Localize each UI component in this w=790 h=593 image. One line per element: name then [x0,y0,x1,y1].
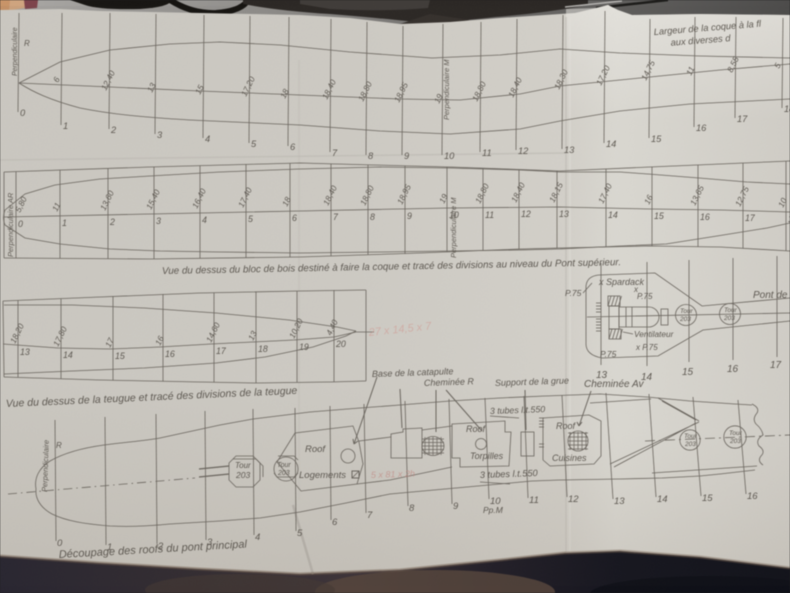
svg-text:R: R [24,39,30,48]
svg-text:15: 15 [654,211,664,221]
svg-text:Tour: Tour [729,430,743,437]
svg-text:7: 7 [367,510,373,521]
svg-text:1: 1 [63,121,68,131]
svg-text:Tour: Tour [680,308,694,315]
svg-text:Roof: Roof [466,424,487,434]
svg-text:17: 17 [216,346,227,356]
svg-text:16: 16 [165,349,175,359]
svg-text:Pp.M: Pp.M [483,505,504,515]
svg-text:203: 203 [277,470,290,477]
svg-text:5: 5 [248,214,253,224]
svg-text:12: 12 [568,494,579,505]
svg-text:0: 0 [18,219,23,229]
svg-text:6: 6 [292,213,297,223]
svg-text:14: 14 [63,350,73,360]
svg-text:15: 15 [682,367,694,378]
svg-text:203: 203 [684,441,696,448]
svg-text:Roof: Roof [556,421,577,431]
svg-text:0: 0 [57,538,63,549]
svg-text:15: 15 [115,351,125,361]
svg-text:13: 13 [564,145,575,155]
svg-text:15: 15 [651,134,662,144]
svg-text:11: 11 [529,495,539,506]
svg-text:1: 1 [62,218,67,228]
svg-text:18: 18 [784,104,790,114]
svg-text:7: 7 [332,148,338,158]
svg-text:5 x 81 x 2h: 5 x 81 x 2h [371,468,415,480]
svg-text:Pont de: Pont de [753,290,788,301]
svg-text:3: 3 [157,130,163,140]
svg-text:P.75: P.75 [637,292,653,301]
svg-text:3 tubes l.t.550: 3 tubes l.t.550 [490,404,546,416]
svg-text:Perpendiculaire M: Perpendiculaire M [442,59,451,120]
svg-text:Roof: Roof [305,444,326,455]
svg-text:P.75: P.75 [565,288,582,298]
svg-text:P.75: P.75 [600,349,617,359]
svg-text:17: 17 [745,213,756,223]
svg-text:4: 4 [202,215,207,225]
svg-text:203: 203 [723,315,735,322]
svg-text:Tour: Tour [684,433,698,440]
svg-text:17: 17 [770,360,782,371]
svg-text:6: 6 [290,142,296,152]
svg-text:14: 14 [608,210,618,220]
svg-text:4: 4 [205,134,210,144]
svg-text:8: 8 [409,503,415,514]
svg-text:203: 203 [235,470,250,480]
svg-text:Tour: Tour [235,461,251,470]
svg-text:Tour: Tour [277,462,291,469]
svg-text:Torpilles: Torpilles [470,451,504,461]
svg-text:19: 19 [299,342,309,352]
svg-text:3: 3 [156,216,161,226]
svg-text:18: 18 [258,344,268,354]
svg-text:10: 10 [444,151,455,161]
svg-text:17: 17 [737,114,748,124]
svg-text:Perpendiculaire AR: Perpendiculaire AR [6,192,15,257]
svg-text:0: 0 [20,108,26,118]
svg-text:2: 2 [109,217,115,227]
svg-text:15: 15 [702,493,713,504]
svg-text:8: 8 [370,212,375,222]
svg-text:11: 11 [485,210,494,220]
svg-text:16: 16 [727,364,739,375]
svg-text:8: 8 [368,151,374,161]
svg-text:Perpendiculaire M: Perpendiculaire M [449,197,458,258]
svg-text:13: 13 [614,496,625,507]
svg-text:Logements: Logements [299,470,346,481]
svg-text:Perpendiculaire: Perpendiculaire [40,440,51,492]
svg-text:9: 9 [407,211,412,221]
svg-text:5: 5 [297,528,303,539]
svg-text:9: 9 [453,501,459,512]
svg-text:16: 16 [696,123,707,133]
svg-text:5: 5 [251,139,257,149]
svg-text:6: 6 [332,517,338,528]
svg-text:14: 14 [657,494,668,505]
svg-text:16: 16 [700,212,710,222]
svg-text:13: 13 [559,209,569,219]
svg-text:Cheminée Av: Cheminée Av [584,379,644,390]
svg-text:2: 2 [110,125,117,135]
svg-text:3 tubes l.t.550: 3 tubes l.t.550 [480,468,539,480]
svg-text:203: 203 [679,316,691,323]
svg-text:Cuisines: Cuisines [552,453,587,463]
svg-text:13: 13 [20,347,30,357]
svg-text:203: 203 [729,438,741,445]
svg-text:x P.75: x P.75 [635,343,658,352]
svg-text:12: 12 [518,146,529,156]
svg-text:Ventilateur: Ventilateur [634,329,675,339]
svg-text:R: R [56,441,62,450]
svg-text:12: 12 [521,209,531,219]
svg-text:16: 16 [747,491,758,502]
svg-text:4: 4 [255,532,260,543]
svg-text:Tour: Tour [724,307,738,314]
svg-text:9: 9 [404,151,409,161]
svg-text:14: 14 [606,139,616,149]
svg-text:Cheminée R: Cheminée R [424,376,475,388]
svg-text:Perpendiculaire: Perpendiculaire [12,27,19,76]
svg-text:20: 20 [335,339,346,349]
svg-text:11: 11 [482,148,492,158]
